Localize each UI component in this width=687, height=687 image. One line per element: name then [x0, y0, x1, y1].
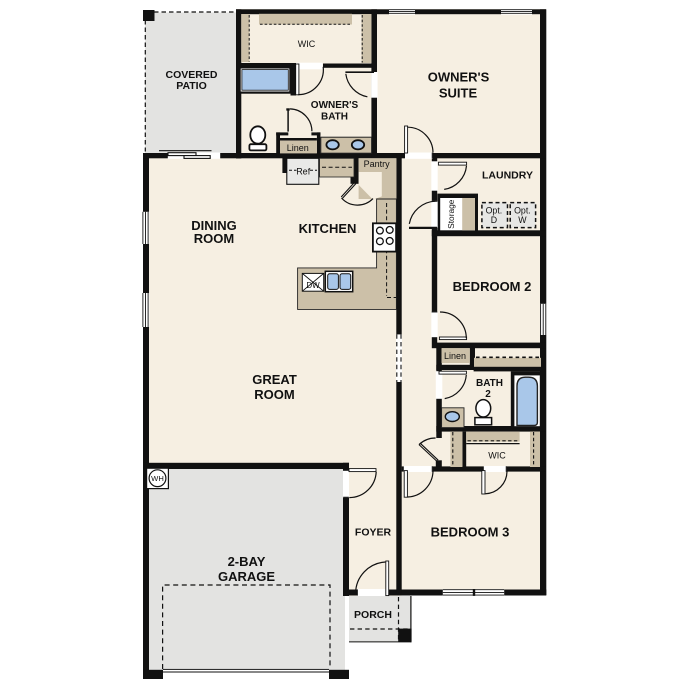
svg-text:OWNER'S: OWNER'S	[428, 70, 490, 85]
svg-text:WIC: WIC	[298, 39, 316, 49]
svg-text:BEDROOM 3: BEDROOM 3	[431, 525, 510, 540]
svg-text:GARAGE: GARAGE	[218, 569, 275, 584]
svg-text:BATH: BATH	[476, 378, 503, 389]
svg-text:2-BAY: 2-BAY	[228, 554, 266, 569]
svg-text:W: W	[518, 215, 527, 225]
svg-text:Opt.: Opt.	[486, 206, 503, 216]
svg-text:WH: WH	[151, 474, 164, 483]
svg-text:BATH: BATH	[321, 112, 348, 123]
svg-text:WIC: WIC	[488, 451, 506, 461]
svg-text:SUITE: SUITE	[439, 86, 478, 101]
svg-text:ROOM: ROOM	[254, 387, 294, 402]
svg-text:Opt.: Opt.	[514, 206, 531, 216]
svg-text:2: 2	[485, 389, 491, 400]
svg-text:Linen: Linen	[287, 143, 309, 153]
svg-text:BEDROOM 2: BEDROOM 2	[453, 279, 532, 294]
svg-text:Linen: Linen	[444, 351, 466, 361]
svg-text:KITCHEN: KITCHEN	[299, 221, 357, 236]
svg-text:FOYER: FOYER	[355, 527, 392, 539]
svg-text:LAUNDRY: LAUNDRY	[482, 170, 533, 182]
svg-text:D: D	[491, 215, 497, 225]
svg-text:ROOM: ROOM	[194, 231, 234, 246]
svg-text:PORCH: PORCH	[354, 609, 392, 621]
svg-text:Storage: Storage	[446, 199, 456, 229]
svg-text:GREAT: GREAT	[252, 372, 297, 387]
svg-text:DW: DW	[306, 281, 320, 290]
svg-text:PATIO: PATIO	[176, 80, 207, 92]
svg-text:OWNER'S: OWNER'S	[311, 100, 359, 111]
svg-text:Ref: Ref	[296, 167, 311, 177]
svg-text:Pantry: Pantry	[364, 159, 391, 169]
